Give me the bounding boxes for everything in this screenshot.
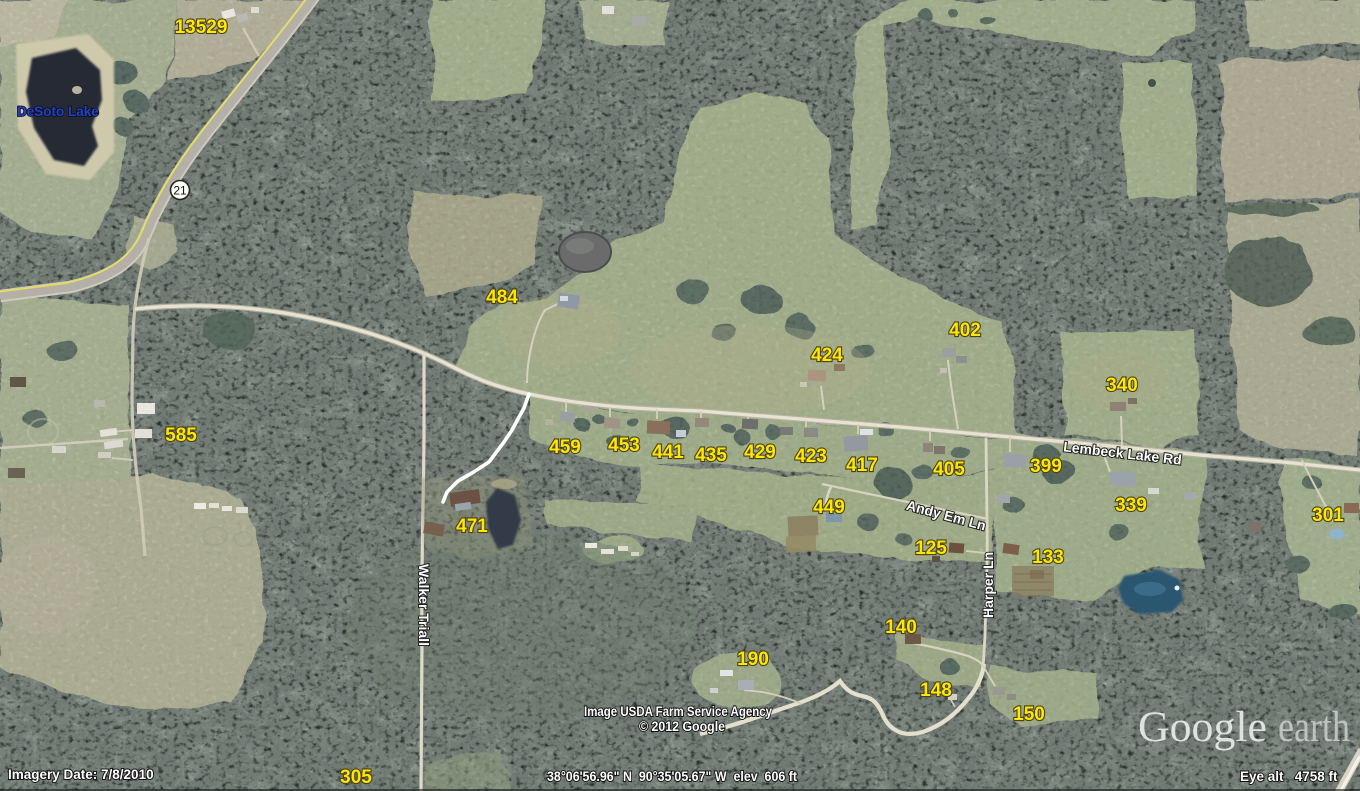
svg-text:125: 125 [915, 538, 947, 559]
svg-text:13529: 13529 [175, 17, 228, 38]
svg-text:429: 429 [744, 442, 776, 463]
svg-text:471: 471 [456, 516, 488, 537]
svg-text:190: 190 [737, 649, 769, 670]
svg-text:150: 150 [1013, 704, 1045, 725]
svg-text:Walker Triall: Walker Triall [416, 564, 432, 646]
svg-text:305: 305 [340, 767, 372, 788]
svg-text:405: 405 [933, 459, 965, 480]
svg-text:453: 453 [608, 435, 640, 456]
svg-text:38°06'56.96" N 90°35'05.67" W: 38°06'56.96" N 90°35'05.67" W elev 606 f… [547, 769, 797, 784]
svg-text:DeSoto Lake: DeSoto Lake [17, 104, 99, 119]
svg-text:585: 585 [165, 425, 197, 446]
svg-text:402: 402 [949, 320, 981, 341]
svg-text:Harper Ln: Harper Ln [980, 552, 996, 618]
svg-text:140: 140 [885, 617, 917, 638]
svg-text:339: 339 [1115, 495, 1147, 516]
svg-text:Eye alt 4758 ft: Eye alt 4758 ft [1240, 769, 1338, 784]
svg-text:399: 399 [1030, 456, 1062, 477]
svg-text:Image USDA Farm Service Agency: Image USDA Farm Service Agency [584, 704, 772, 719]
svg-text:earth: earth [1278, 704, 1350, 751]
svg-text:133: 133 [1032, 547, 1064, 568]
svg-text:417: 417 [846, 455, 878, 476]
svg-text:484: 484 [486, 287, 518, 308]
svg-text:449: 449 [813, 497, 845, 518]
svg-text:© 2012 Google: © 2012 Google [639, 719, 725, 734]
svg-text:459: 459 [549, 437, 581, 458]
svg-text:423: 423 [795, 446, 827, 467]
svg-text:Imagery Date: 7/8/2010: Imagery Date: 7/8/2010 [8, 767, 154, 782]
svg-text:301: 301 [1312, 505, 1344, 526]
svg-text:21: 21 [173, 184, 187, 198]
svg-text:424: 424 [811, 345, 843, 366]
svg-text:148: 148 [920, 680, 952, 701]
svg-text:435: 435 [695, 445, 727, 466]
svg-text:340: 340 [1106, 375, 1138, 396]
svg-text:Google: Google [1138, 704, 1267, 751]
svg-text:441: 441 [652, 442, 684, 463]
